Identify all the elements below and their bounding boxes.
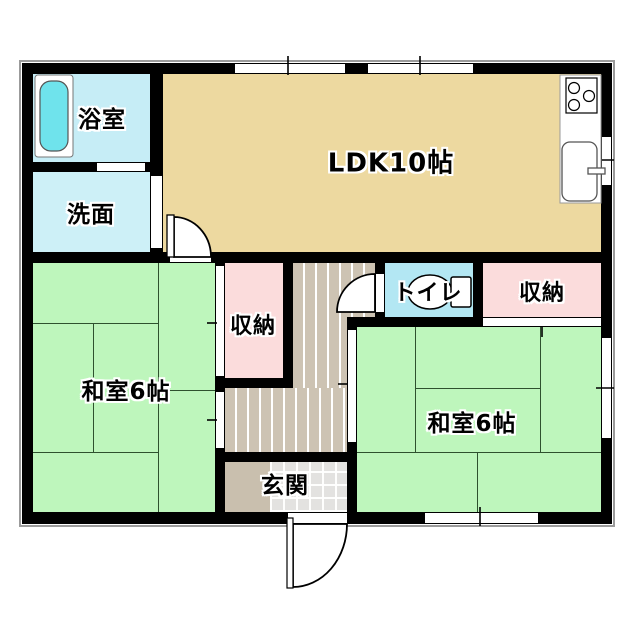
front-door-arc bbox=[287, 518, 347, 588]
bathtub-icon bbox=[35, 75, 73, 157]
toilet-door-arc bbox=[337, 274, 375, 312]
label-tatami-right: 和室6帖 bbox=[427, 404, 516, 438]
label-closet-center: 収納 bbox=[230, 308, 276, 340]
ldk-door-arc bbox=[167, 215, 211, 257]
label-toilet: トイレ bbox=[393, 275, 462, 307]
label-entrance: 玄関 bbox=[261, 466, 309, 500]
label-bathroom: 浴室 bbox=[78, 100, 126, 134]
label-ldk: LDK10帖 bbox=[328, 143, 454, 180]
label-tatami-left: 和室6帖 bbox=[81, 372, 170, 406]
label-washroom: 洗面 bbox=[67, 195, 115, 229]
floor-plan: 浴室 洗面 LDK10帖 収納 トイレ 収納 和室6帖 和室6帖 玄関 bbox=[0, 0, 640, 640]
fixtures-overlay bbox=[0, 0, 640, 640]
stove-icon bbox=[566, 78, 597, 113]
label-closet-right: 収納 bbox=[519, 275, 565, 307]
